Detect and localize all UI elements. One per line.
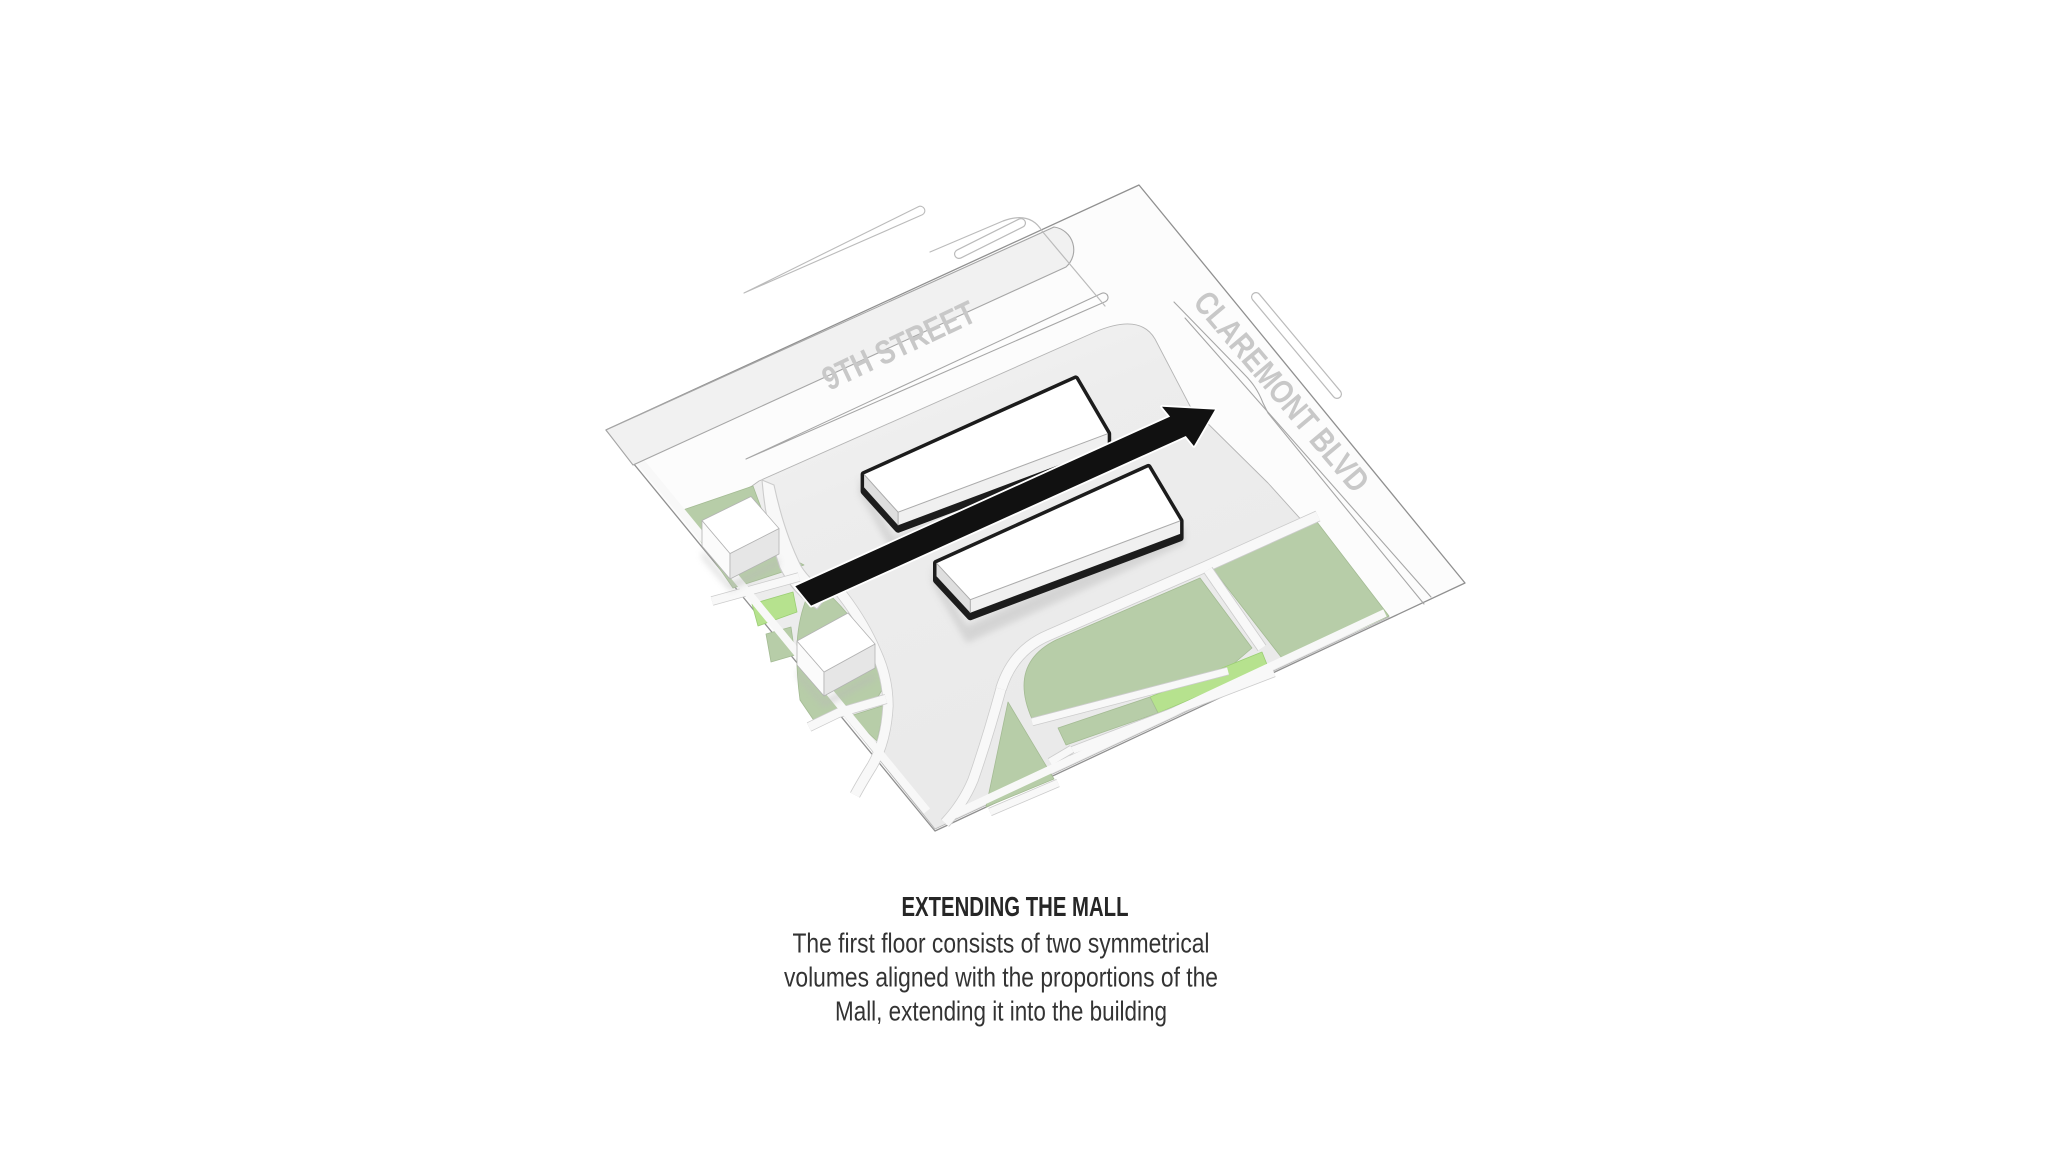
svg-text:Mall, extending it into the bu: Mall, extending it into the building [835, 996, 1167, 1027]
svg-text:The first floor consists of tw: The first floor consists of two symmetri… [793, 928, 1210, 959]
svg-text:EXTENDING THE MALL: EXTENDING THE MALL [902, 891, 1129, 922]
svg-text:volumes aligned with the propo: volumes aligned with the proportions of … [784, 962, 1218, 993]
